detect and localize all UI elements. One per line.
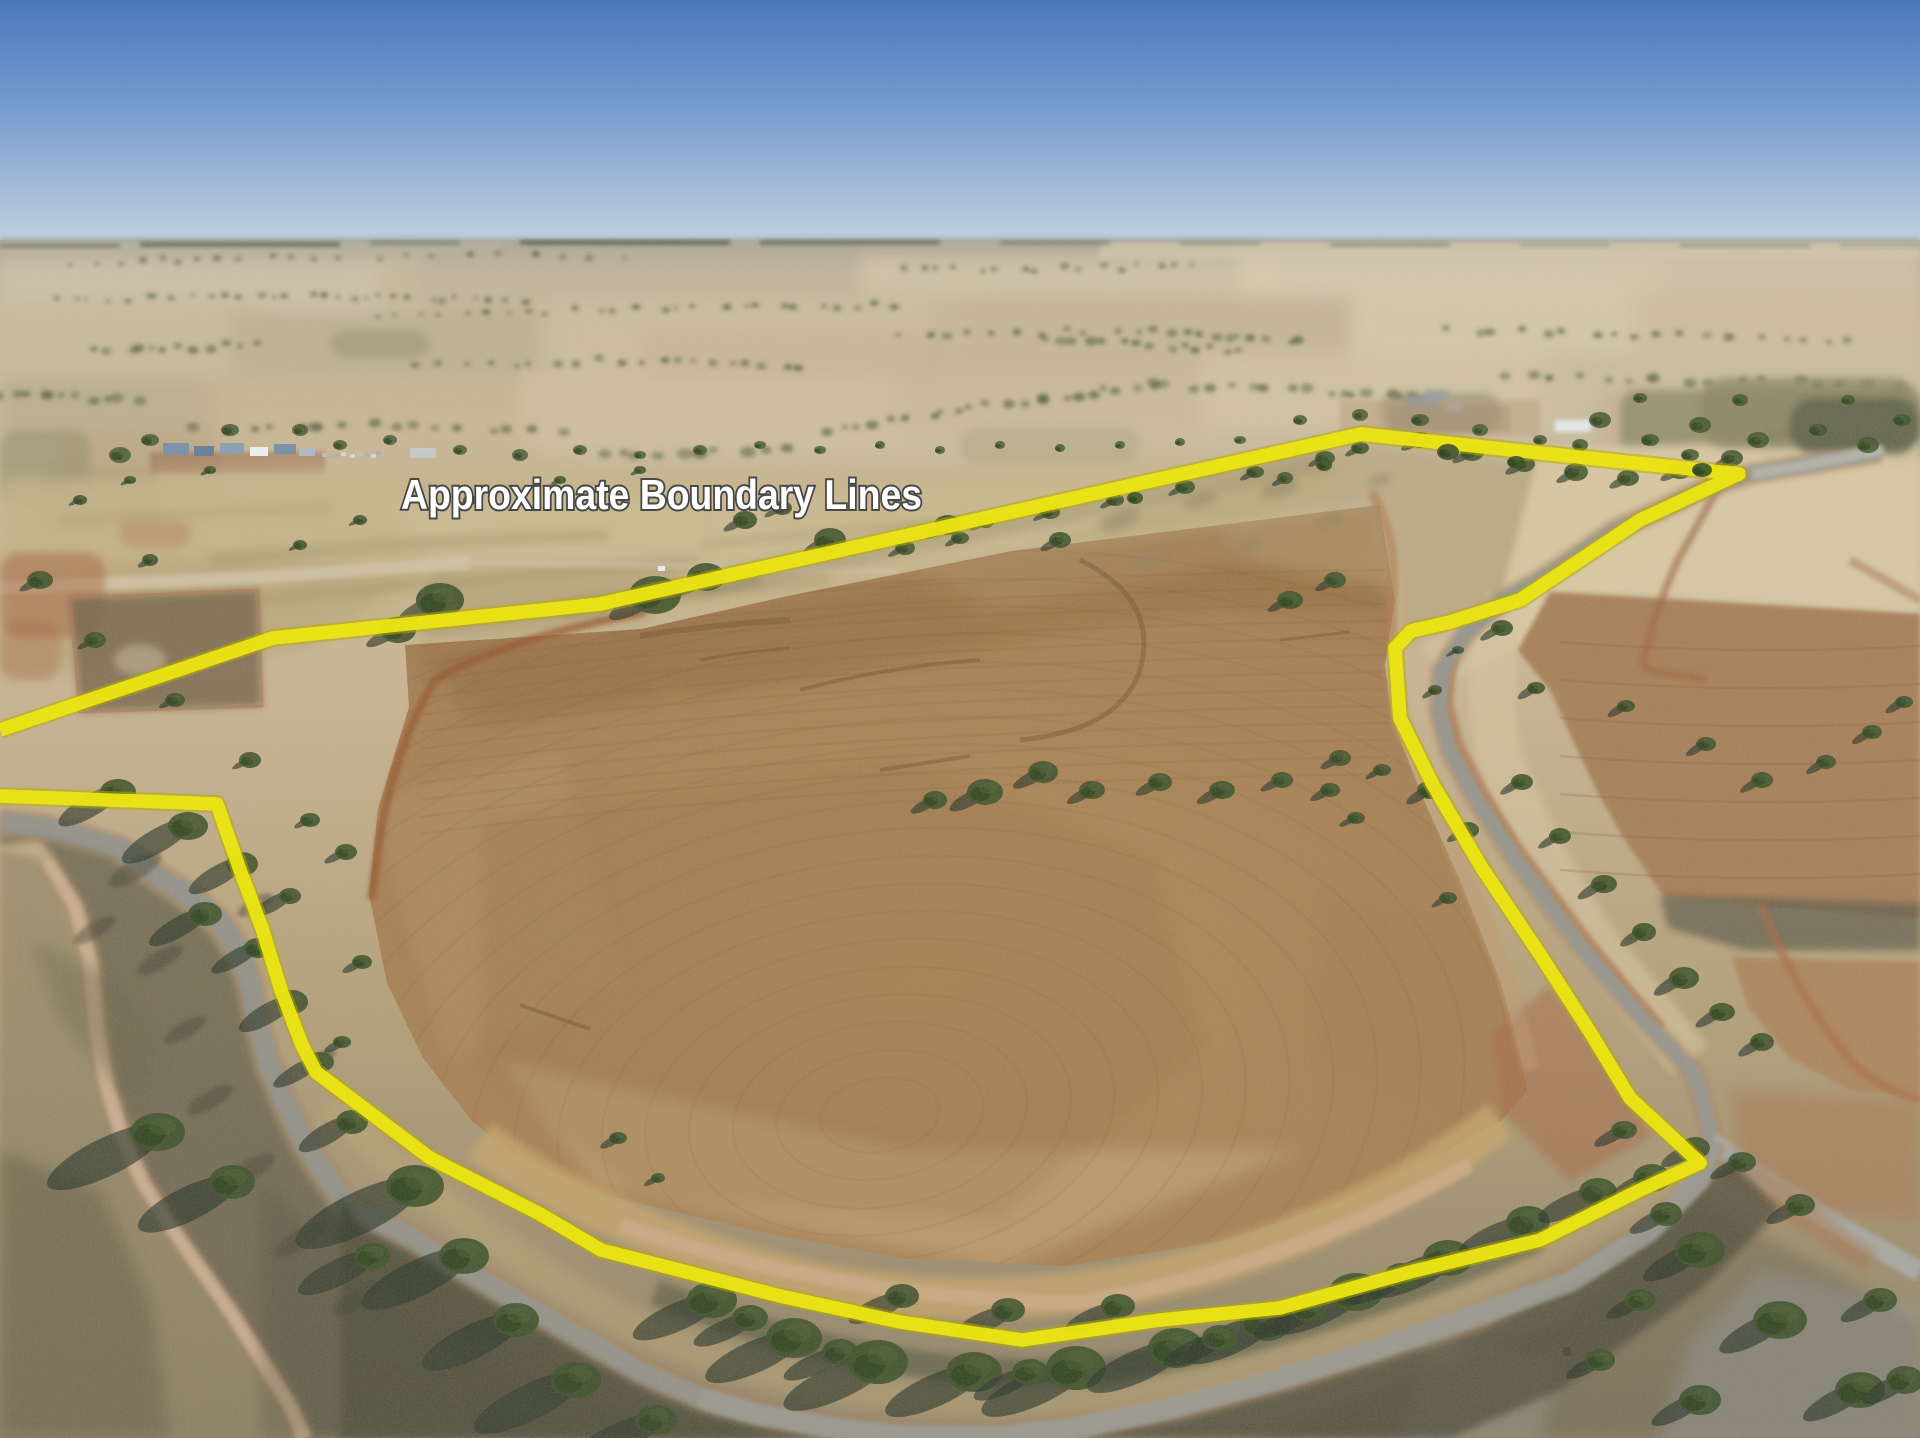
svg-text:Approximate Boundary Lines: Approximate Boundary Lines <box>401 471 922 518</box>
